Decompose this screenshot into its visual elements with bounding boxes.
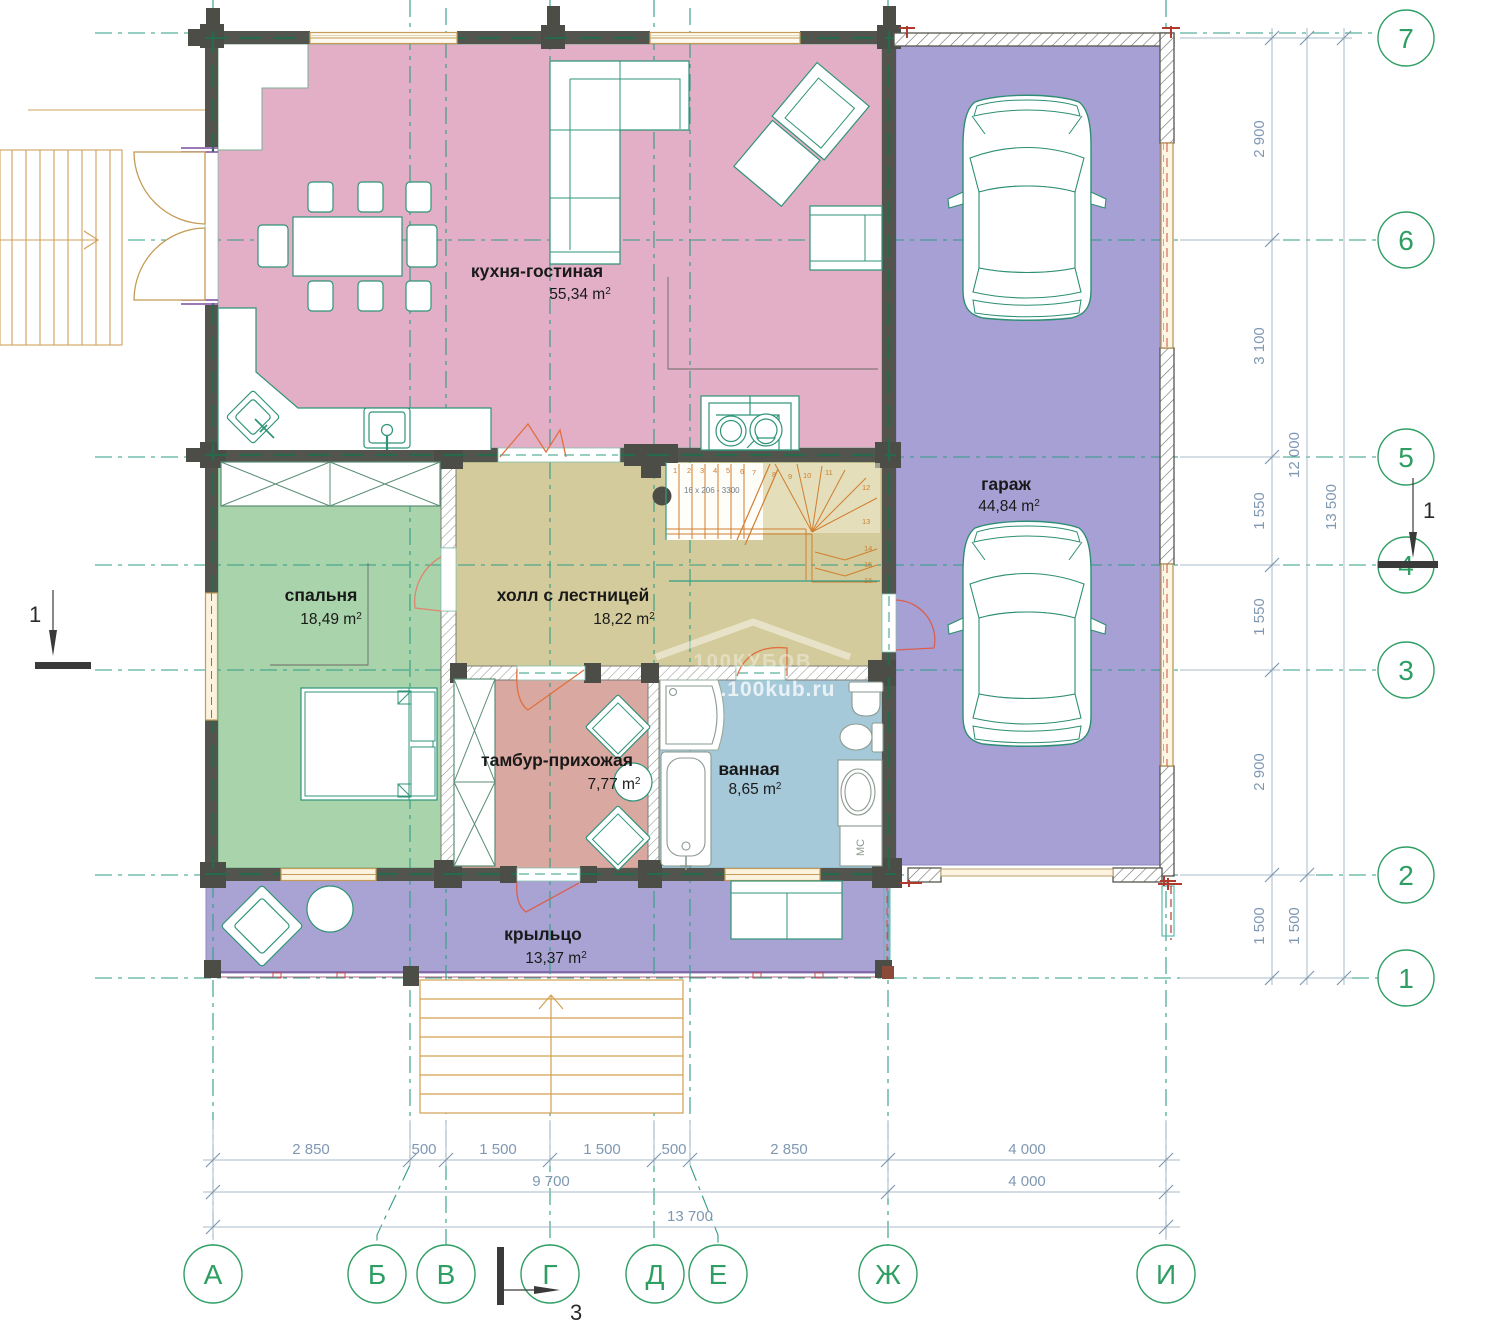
svg-text:4 000: 4 000 — [1008, 1141, 1046, 1158]
svg-text:9 700: 9 700 — [532, 1173, 570, 1190]
svg-text:3: 3 — [570, 1300, 582, 1325]
svg-text:1 500: 1 500 — [1251, 907, 1268, 945]
svg-text:13: 13 — [862, 517, 870, 526]
svg-text:.100kub.ru: .100kub.ru — [720, 678, 835, 701]
svg-text:3: 3 — [700, 466, 704, 475]
svg-text:13 500: 13 500 — [1323, 484, 1340, 530]
svg-text:1: 1 — [1423, 498, 1435, 523]
svg-text:500: 500 — [661, 1141, 686, 1158]
svg-text:5: 5 — [1398, 442, 1414, 473]
svg-text:18,49 m2: 18,49 m2 — [300, 611, 362, 628]
svg-text:8: 8 — [772, 470, 776, 479]
svg-text:55,34 m2: 55,34 m2 — [549, 286, 611, 303]
svg-text:18,22 m2: 18,22 m2 — [593, 611, 655, 628]
svg-text:Ж: Ж — [875, 1259, 901, 1290]
svg-text:1 500: 1 500 — [479, 1141, 517, 1158]
svg-text:холл с лестницей: холл с лестницей — [497, 585, 650, 605]
svg-text:1: 1 — [1398, 963, 1414, 994]
svg-text:14: 14 — [864, 544, 872, 553]
svg-text:8,65 m2: 8,65 m2 — [729, 781, 782, 798]
svg-text:16 x 206 - 3300: 16 x 206 - 3300 — [684, 486, 740, 495]
svg-text:5: 5 — [726, 466, 730, 475]
svg-text:4: 4 — [713, 466, 717, 475]
svg-text:4 000: 4 000 — [1008, 1173, 1046, 1190]
svg-text:9: 9 — [788, 472, 792, 481]
svg-text:1 500: 1 500 — [1286, 907, 1303, 945]
svg-text:2 850: 2 850 — [770, 1141, 808, 1158]
svg-text:И: И — [1156, 1259, 1176, 1290]
svg-text:Д: Д — [646, 1259, 665, 1290]
svg-text:2 850: 2 850 — [292, 1141, 330, 1158]
svg-text:6: 6 — [1398, 225, 1414, 256]
svg-text:1: 1 — [29, 602, 41, 627]
svg-text:44,84 m2: 44,84 m2 — [978, 498, 1040, 515]
svg-text:100КУБОВ: 100КУБОВ — [694, 651, 813, 673]
svg-text:2: 2 — [687, 466, 691, 475]
svg-text:7,77 m2: 7,77 m2 — [588, 776, 641, 793]
svg-text:спальня: спальня — [285, 585, 358, 605]
svg-text:гараж: гараж — [981, 474, 1031, 494]
svg-text:13,37 m2: 13,37 m2 — [525, 950, 587, 967]
svg-text:ванная: ванная — [718, 759, 779, 779]
svg-text:Б: Б — [368, 1259, 386, 1290]
svg-text:12: 12 — [862, 483, 870, 492]
svg-text:2 900: 2 900 — [1251, 753, 1268, 791]
svg-text:МС: МС — [855, 839, 867, 856]
svg-text:Г: Г — [542, 1259, 557, 1290]
svg-text:500: 500 — [411, 1141, 436, 1158]
svg-text:15: 15 — [864, 560, 872, 569]
svg-text:крыльцо: крыльцо — [504, 924, 582, 944]
svg-text:тамбур-прихожая: тамбур-прихожая — [481, 750, 633, 770]
svg-text:2 900: 2 900 — [1251, 120, 1268, 158]
svg-text:7: 7 — [1398, 23, 1414, 54]
svg-text:1 550: 1 550 — [1251, 492, 1268, 530]
svg-text:13 700: 13 700 — [667, 1208, 713, 1225]
svg-text:6: 6 — [740, 467, 744, 476]
svg-text:1: 1 — [673, 466, 677, 475]
svg-text:2: 2 — [1398, 860, 1414, 891]
svg-text:3: 3 — [1398, 655, 1414, 686]
svg-text:11: 11 — [825, 468, 833, 477]
svg-text:10: 10 — [803, 471, 811, 480]
svg-text:А: А — [204, 1259, 223, 1290]
svg-text:12 000: 12 000 — [1286, 432, 1303, 478]
svg-text:кухня-гостиная: кухня-гостиная — [471, 261, 603, 281]
svg-text:В: В — [437, 1259, 456, 1290]
svg-text:Е: Е — [709, 1259, 728, 1290]
svg-text:1 500: 1 500 — [583, 1141, 621, 1158]
svg-text:3 100: 3 100 — [1251, 327, 1268, 365]
svg-text:7: 7 — [752, 468, 756, 477]
svg-text:1 550: 1 550 — [1251, 598, 1268, 636]
